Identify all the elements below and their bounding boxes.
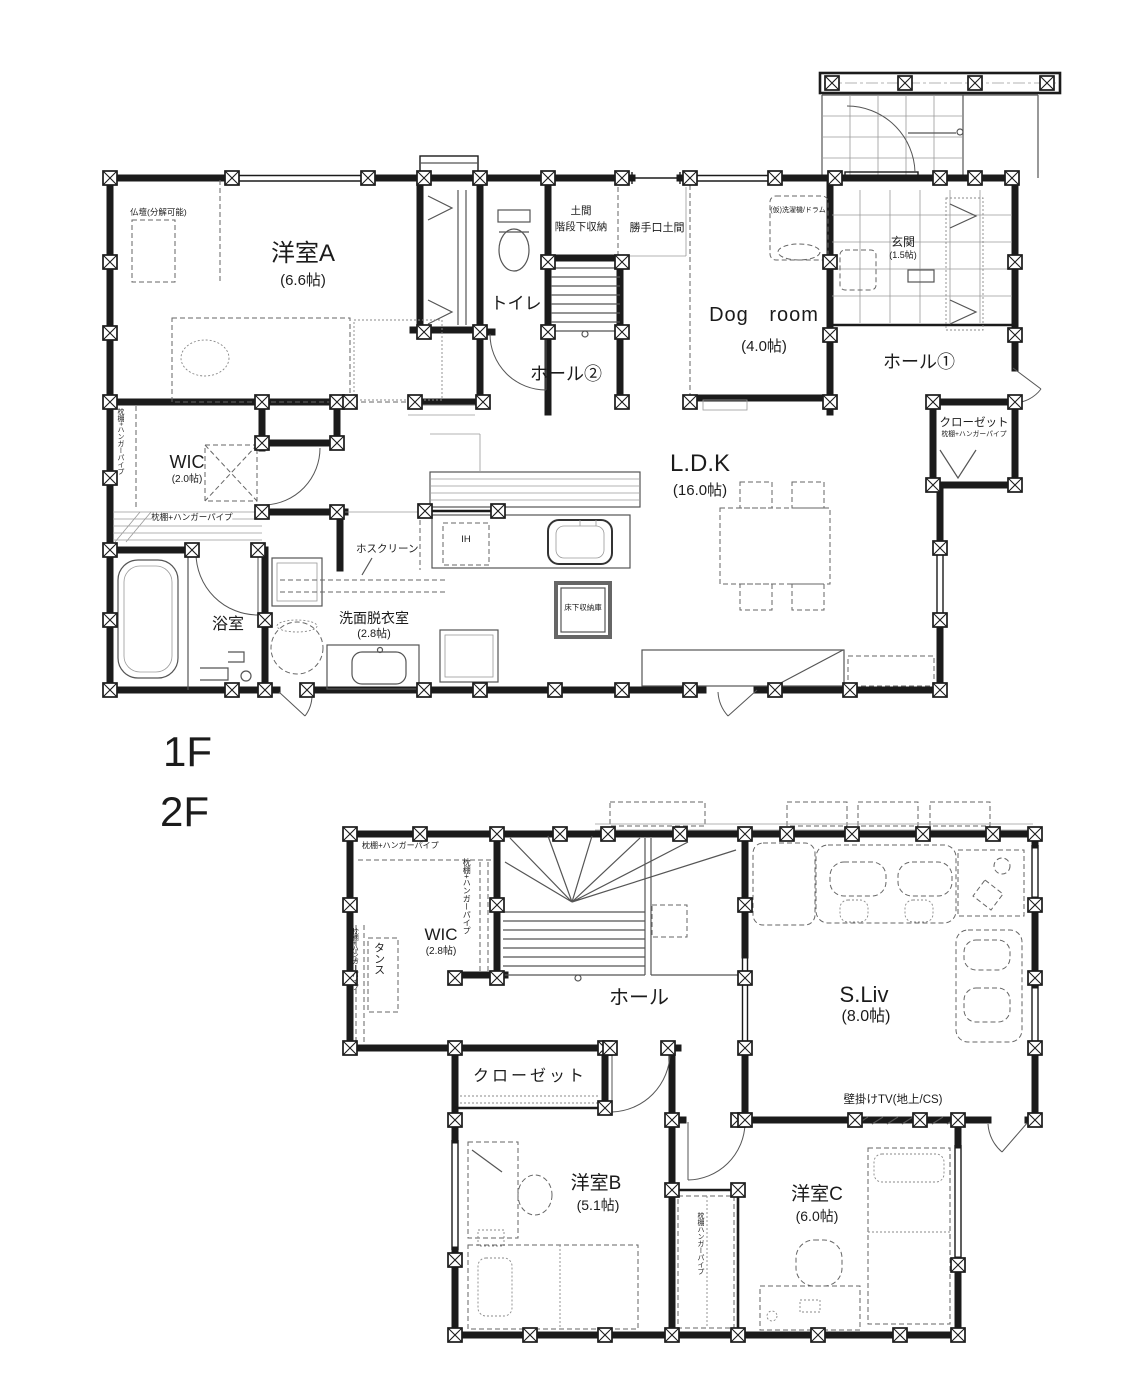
note-katteguchi: 勝手口土間	[630, 222, 685, 235]
floor-plan-page: 1F 2F 洋室A (6.6帖) 仏壇(分解可能) トイレ 土間 階段下収納 勝…	[0, 0, 1137, 1400]
room-label-yoshitsu-a: 洋室A	[271, 240, 335, 268]
room-size-dog-room: (4.0帖)	[741, 338, 787, 355]
note-yukashita: 床下収納庫	[564, 604, 602, 613]
room-label-yoshitsu-b: 洋室B	[571, 1173, 622, 1195]
note-washer: (仮)洗濯機/ドラム	[770, 207, 825, 215]
room-size-yoshitsu-c: (6.0帖)	[796, 1208, 839, 1224]
room-label-senmen: 洗面脱衣室	[339, 610, 409, 626]
note-wic2-shelf-top: 枕棚+ハンガーパイプ	[362, 841, 439, 850]
note-kaidan-shita: 階段下収納	[555, 221, 608, 233]
note-closet-shelf-1f: 枕棚+ハンガーパイプ	[941, 431, 1006, 439]
room-size-sliv: (8.0帖)	[842, 1008, 891, 1026]
note-closet-1f: クローゼット	[940, 417, 1009, 430]
room-label-toilet: トイレ	[491, 294, 542, 314]
walls-1f	[110, 178, 1015, 690]
room-label-hall1: ホール①	[883, 352, 955, 373]
room-label-genkan: 玄関	[891, 236, 915, 250]
room-label-yoshitsu-c: 洋室C	[791, 1184, 843, 1206]
note-wic-pipe-bottom: 枕棚+ハンガーパイプ	[151, 513, 232, 523]
note-wic2-shelf-left: 枕棚+ハンガーパイプ	[350, 928, 357, 990]
room-size-ldk: (16.0帖)	[673, 482, 727, 499]
floor-label-2f: 2F	[160, 788, 209, 836]
note-tansu: タンス	[372, 942, 385, 975]
note-hosclean: ホスクリーン	[356, 543, 418, 555]
floor-label-1f: 1F	[163, 728, 212, 776]
room-label-bath: 浴室	[212, 616, 244, 634]
room-label-wic-1f: WIC	[170, 452, 205, 473]
room-size-genkan: (1.5帖)	[889, 250, 917, 260]
room-size-yoshitsu-b: (5.1帖)	[577, 1197, 620, 1213]
room-size-wic-2f: (2.8帖)	[426, 946, 457, 958]
note-wic2-shelf-right: 枕棚+ハンガーパイプ	[462, 858, 471, 935]
note-tv-wall: 壁掛けTV(地上/CS)	[843, 1094, 942, 1107]
room-label-ldk: L.D.K	[670, 450, 730, 478]
note-wic-pipe-left: 枕棚+ハンガーパイプ	[116, 408, 124, 475]
room-size-wic-1f: (2.0帖)	[172, 474, 203, 486]
structure-posts	[103, 76, 1054, 1342]
room-size-senmen: (2.8帖)	[357, 628, 391, 641]
note-closet-c-shelf: 枕棚ハンガーパイプ	[696, 1212, 704, 1275]
room-label-dog-room: Dog room	[709, 304, 819, 327]
room-label-closet-2f: クローゼット	[473, 1068, 587, 1086]
room-label-hall2: ホール②	[530, 364, 602, 385]
note-doma: 土間	[571, 205, 592, 217]
room-label-sliv: S.Liv	[840, 982, 889, 1007]
note-ih: IH	[461, 535, 471, 546]
room-label-wic-2f: WIC	[424, 925, 457, 945]
room-label-hall-2f: ホール	[609, 987, 669, 1010]
note-butsudan: 仏壇(分解可能)	[130, 208, 187, 218]
room-size-yoshitsu-a: (6.6帖)	[280, 272, 326, 289]
